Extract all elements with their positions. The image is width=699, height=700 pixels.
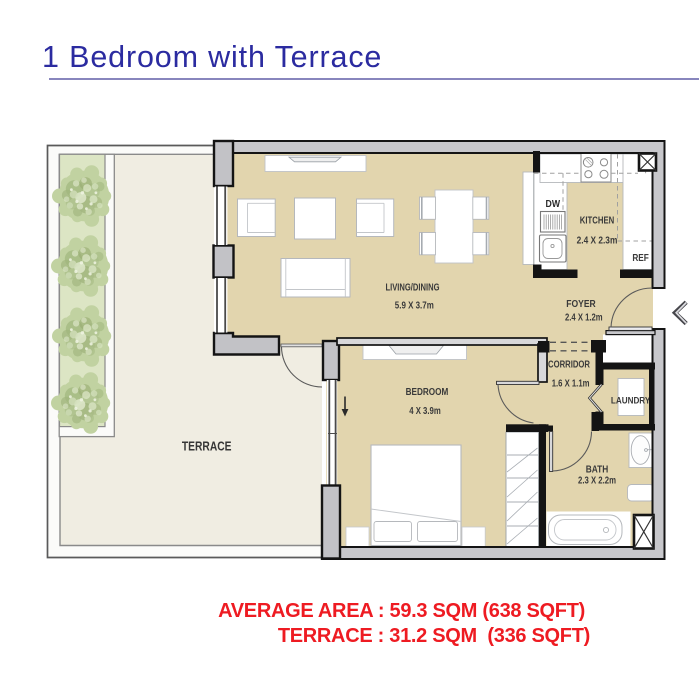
svg-text:DW: DW bbox=[546, 199, 561, 210]
svg-text:CORRIDOR: CORRIDOR bbox=[548, 359, 590, 370]
svg-text:4 X 3.9m: 4 X 3.9m bbox=[409, 406, 441, 417]
svg-text:BATH: BATH bbox=[586, 464, 609, 475]
svg-text:1.6 X 1.1m: 1.6 X 1.1m bbox=[552, 378, 590, 389]
svg-text:2.4 X 2.3m: 2.4 X 2.3m bbox=[577, 236, 618, 247]
svg-text:2.3 X 2.2m: 2.3 X 2.2m bbox=[578, 476, 616, 487]
svg-text:FOYER: FOYER bbox=[566, 299, 596, 310]
svg-text:2.4 X 1.2m: 2.4 X 1.2m bbox=[565, 313, 603, 324]
svg-text:BEDROOM: BEDROOM bbox=[406, 387, 449, 398]
svg-text:REF: REF bbox=[632, 253, 649, 264]
svg-text:5.9 X 3.7m: 5.9 X 3.7m bbox=[395, 300, 434, 311]
svg-text:KITCHEN: KITCHEN bbox=[580, 215, 615, 226]
svg-text:TERRACE: TERRACE bbox=[182, 439, 232, 454]
svg-text:LAUNDRY: LAUNDRY bbox=[611, 395, 651, 406]
svg-text:LIVING/DINING: LIVING/DINING bbox=[386, 283, 440, 294]
